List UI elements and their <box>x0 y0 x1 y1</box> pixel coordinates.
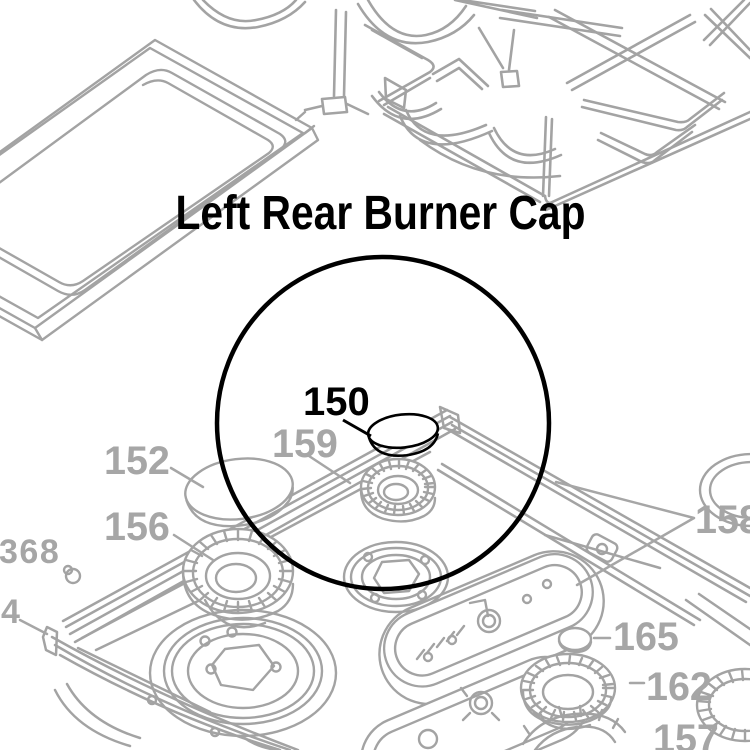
svg-text:165: 165 <box>613 615 679 659</box>
svg-text:162: 162 <box>646 665 712 709</box>
svg-text:157: 157 <box>653 717 719 750</box>
svg-text:159: 159 <box>272 422 338 466</box>
svg-text:158: 158 <box>695 498 750 542</box>
svg-text:368: 368 <box>0 533 60 571</box>
svg-text:150: 150 <box>303 380 370 424</box>
svg-text:152: 152 <box>104 439 170 483</box>
svg-text:Left Rear Burner Cap: Left Rear Burner Cap <box>176 187 586 240</box>
svg-text:156: 156 <box>104 505 170 549</box>
svg-text:4: 4 <box>1 593 21 631</box>
